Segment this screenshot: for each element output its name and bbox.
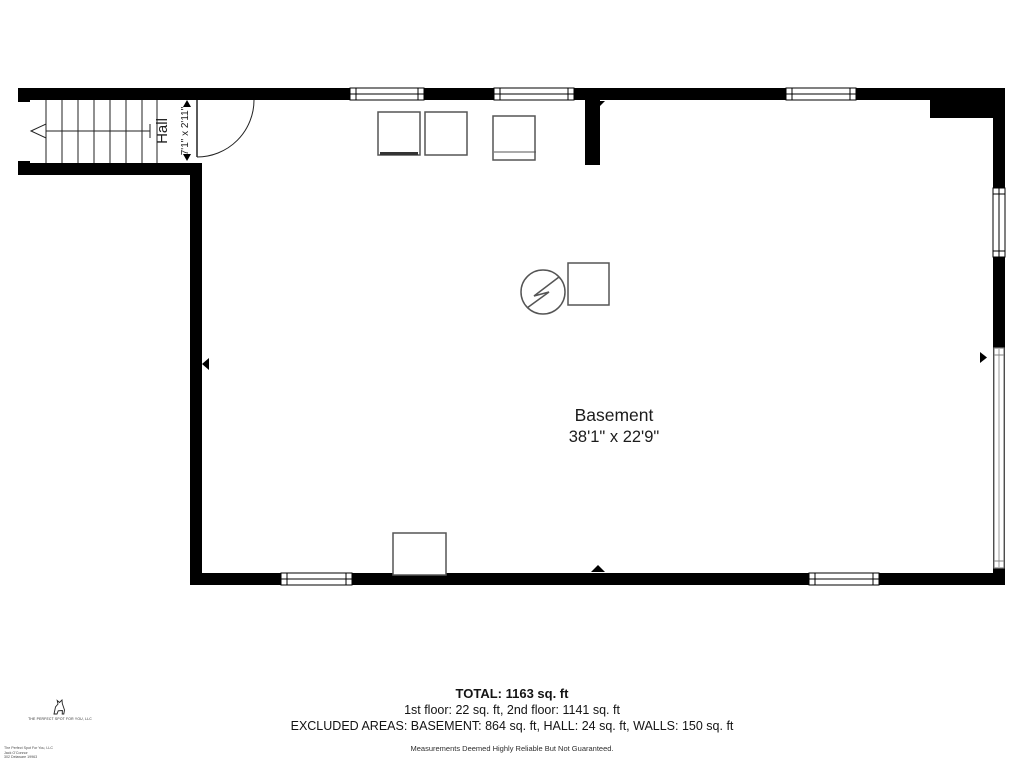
- appliance-square: [378, 112, 420, 155]
- marker-arrow-bottom: [591, 565, 605, 572]
- marker-arrow-left: [202, 358, 209, 370]
- fine-print-block: The Perfect Spot For You, LLC Jack O'Con…: [4, 746, 53, 760]
- fine-print-line: The Perfect Spot For You, LLC: [4, 746, 53, 751]
- hall-room-dimensions: 7'1" x 2'11": [176, 91, 196, 171]
- dog-logo-icon: [50, 697, 70, 717]
- hall-room-label: Hall: [148, 101, 178, 161]
- reference-markers: [183, 100, 987, 572]
- company-name-text: THE PERFECT SPOT FOR YOU, LLC: [28, 717, 92, 721]
- company-logo: THE PERFECT SPOT FOR YOU, LLC: [28, 697, 92, 721]
- total-area-text: TOTAL: 1163 sq. ft: [0, 686, 1024, 701]
- floor-areas-text: 1st floor: 22 sq. ft, 2nd floor: 1141 sq…: [0, 703, 1024, 717]
- stair-direction-arrowhead: [31, 124, 46, 138]
- interior-wall-stub: [585, 100, 600, 165]
- fine-print-line: 302 Delaware 19963: [4, 755, 53, 760]
- left-wall: [190, 163, 202, 585]
- hall-bottom-wall: [18, 163, 202, 175]
- floor-plan-page: { "rooms": { "basement": { "label": "Bas…: [0, 0, 1024, 768]
- left-wall-upper-stub: [18, 88, 30, 102]
- marker-arrow-right: [980, 352, 987, 363]
- stairs: [31, 100, 157, 163]
- door: [197, 100, 254, 157]
- walls: [18, 88, 1005, 585]
- basement-room-label: Basement: [514, 405, 714, 426]
- basement-room-dimensions: 38'1" x 22'9": [514, 428, 714, 447]
- door-swing-arc: [197, 100, 254, 157]
- right-windows: [993, 188, 1005, 568]
- appliance-square: [393, 533, 446, 575]
- furnace-square: [568, 263, 609, 305]
- dog-silhouette-path: [54, 700, 65, 714]
- appliance-square: [425, 112, 467, 155]
- appliance-square: [493, 116, 535, 160]
- disclaimer-text: Measurements Deemed Highly Reliable But …: [0, 744, 1024, 753]
- excluded-areas-text: EXCLUDED AREAS: BASEMENT: 864 sq. ft, HA…: [0, 719, 1024, 733]
- fixtures: [378, 112, 609, 575]
